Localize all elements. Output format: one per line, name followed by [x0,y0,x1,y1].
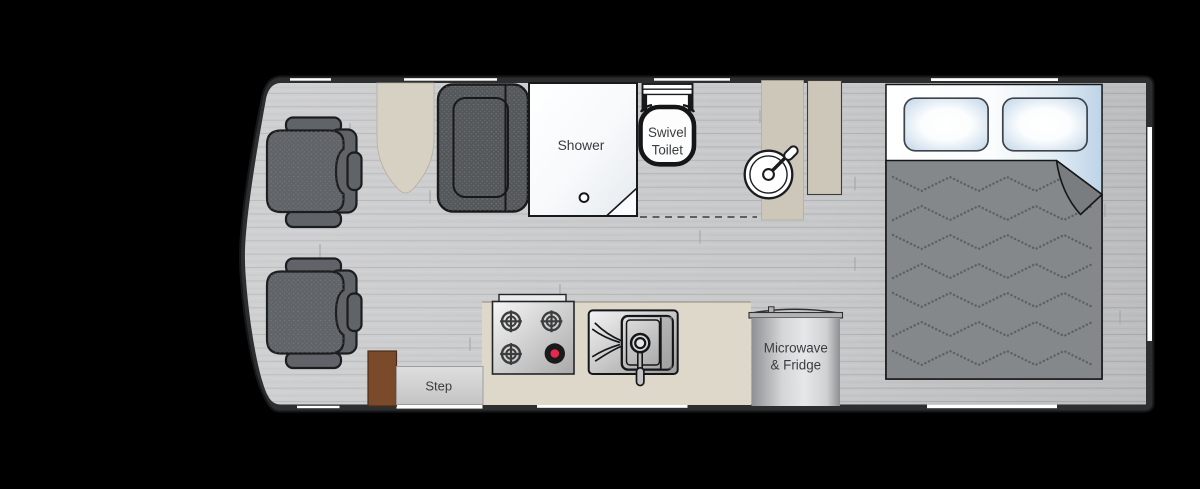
svg-text:& Fridge: & Fridge [770,358,821,373]
svg-text:Microwave: Microwave [764,341,828,356]
svg-text:Step: Step [425,379,452,394]
svg-text:Shower: Shower [558,138,605,153]
svg-text:Swivel: Swivel [648,125,687,140]
svg-text:Toilet: Toilet [652,143,684,158]
